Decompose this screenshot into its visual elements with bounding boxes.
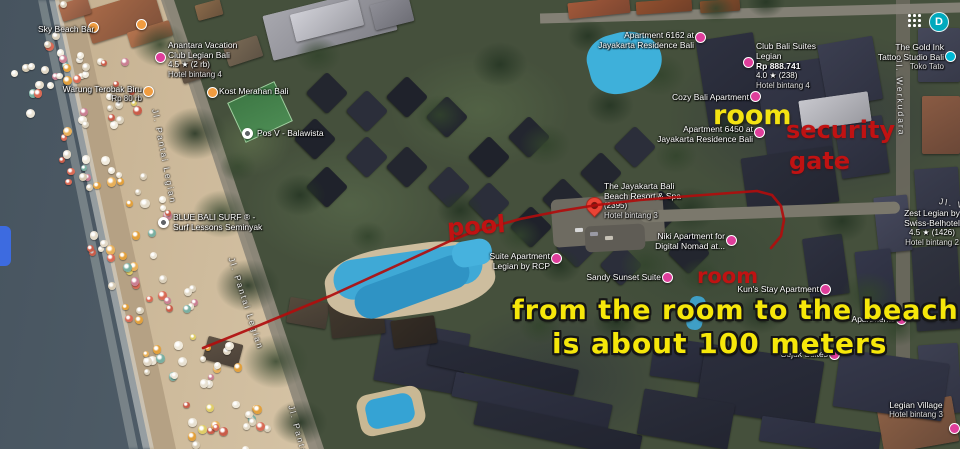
beach-umbrella bbox=[156, 354, 165, 363]
place-label-line: Legian bbox=[756, 51, 816, 61]
place-label-line: Anantara Vacation bbox=[168, 40, 237, 50]
place-label-line: Rp 80 rb bbox=[63, 94, 142, 104]
place-label-line: Jayakarta Residence Bali bbox=[657, 134, 753, 144]
beach-umbrella bbox=[47, 82, 54, 89]
place-label-line: (2395) bbox=[604, 201, 681, 211]
beach-umbrella bbox=[108, 282, 116, 290]
place-label-line: The Gold Ink bbox=[878, 42, 944, 52]
beach-umbrella bbox=[225, 342, 234, 351]
place-label-line: 4.5 ★ (1426) bbox=[904, 228, 960, 238]
beach-umbrella bbox=[159, 275, 167, 283]
beach-umbrella bbox=[178, 357, 187, 366]
tree-canopy bbox=[240, 332, 312, 391]
place-label-line: Pos V - Balawista bbox=[257, 128, 324, 138]
place-label-line: Niki Apartment for bbox=[655, 231, 725, 241]
beach-umbrella bbox=[140, 173, 147, 180]
beach-umbrella bbox=[253, 405, 262, 414]
place-label-line: Hotel bintang 3 bbox=[604, 211, 681, 221]
annotation-distance-line-1: from the room to the beach bbox=[512, 295, 959, 326]
place-label-line: 4.0 ★ (238) bbox=[756, 71, 816, 81]
beach-umbrella bbox=[174, 341, 183, 350]
place-label-line: Swiss-Belhotel bbox=[904, 218, 960, 228]
place-label-legian-village[interactable]: Legian VillageHotel bintang 3 bbox=[889, 400, 943, 420]
annotation-room-right: room bbox=[697, 264, 758, 288]
beach-umbrella bbox=[153, 345, 162, 354]
parking-area bbox=[584, 223, 645, 252]
beach-umbrella bbox=[140, 199, 149, 208]
suite-apartment-rcp-pin[interactable] bbox=[551, 253, 562, 264]
place-label-line: Club Bali Suites bbox=[756, 41, 816, 51]
place-label-line: Suite Apartment bbox=[490, 251, 550, 261]
map-canvas[interactable]: Sky Beach BarAnantara VacationClub Legia… bbox=[0, 0, 960, 449]
beach-umbrella bbox=[143, 357, 152, 366]
beach-umbrella bbox=[87, 245, 94, 252]
annotation-distance-line-2: is about 100 meters bbox=[552, 327, 887, 360]
beach-umbrella bbox=[107, 177, 116, 186]
beach-umbrella bbox=[86, 184, 93, 191]
left-blue-bar bbox=[0, 226, 11, 266]
beach-umbrella bbox=[184, 288, 192, 296]
place-label-line: Tattoo Studio Bali bbox=[878, 52, 944, 62]
beach-umbrella bbox=[123, 263, 132, 272]
beach-umbrella bbox=[264, 425, 271, 432]
beach-umbrella bbox=[93, 182, 100, 189]
club-bali-suites-pin[interactable] bbox=[743, 57, 754, 68]
beach-umbrella bbox=[108, 114, 115, 121]
place-label-line: Hotel bintang 3 bbox=[889, 410, 943, 420]
beach-umbrella bbox=[192, 441, 200, 449]
beach-umbrella bbox=[243, 423, 250, 430]
beach-umbrella bbox=[135, 316, 143, 324]
account-avatar[interactable]: D bbox=[929, 12, 949, 32]
place-label-pos-v-balawista[interactable]: Pos V - Balawista bbox=[257, 128, 324, 138]
place-label-jayakarta-bali-resort[interactable]: The Jayakarta BaliBeach Resort & Spa(239… bbox=[604, 181, 681, 221]
building bbox=[922, 96, 960, 154]
place-label-line: 4.5 ★ (2 rb) bbox=[168, 60, 237, 70]
tree-canopy bbox=[517, 122, 573, 168]
tree-canopy bbox=[293, 35, 343, 76]
place-label-niki-apartment[interactable]: Niki Apartment forDigital Nomad at... bbox=[655, 231, 725, 251]
beach-umbrella bbox=[44, 41, 51, 48]
beach-umbrella bbox=[107, 105, 113, 111]
place-label-line: Apartment 6162 at bbox=[598, 30, 694, 40]
place-label-line: Hotel bintang 4 bbox=[168, 70, 237, 80]
google-apps-grid-icon[interactable] bbox=[908, 14, 922, 28]
parked-car bbox=[575, 228, 583, 232]
beach-umbrella bbox=[117, 178, 124, 185]
beach-umbrella bbox=[190, 334, 196, 340]
annotation-gate: gate bbox=[789, 147, 850, 175]
beach-umbrella bbox=[148, 229, 156, 237]
beach-umbrella bbox=[63, 150, 71, 158]
beach-umbrella bbox=[188, 418, 196, 426]
beach-umbrella bbox=[232, 401, 240, 409]
beach-umbrella bbox=[164, 297, 171, 304]
place-label-line: Digital Nomad at... bbox=[655, 241, 725, 251]
beach-umbrella bbox=[125, 315, 133, 323]
beach-umbrella bbox=[59, 55, 67, 63]
beach-umbrella bbox=[159, 196, 166, 203]
beach-umbrella bbox=[90, 231, 99, 240]
legian-village-pin[interactable] bbox=[949, 423, 960, 434]
beach-umbrella bbox=[101, 156, 110, 165]
place-label-line: Legian Village bbox=[889, 400, 943, 410]
place-label-line: Zest Legian by bbox=[904, 208, 960, 218]
warung-terobak-biru-pin[interactable] bbox=[143, 86, 154, 97]
beach-bar-2-pin[interactable] bbox=[136, 19, 147, 30]
tree-canopy bbox=[272, 172, 328, 218]
place-label-line: Surf Lessons Seminyak bbox=[173, 222, 262, 232]
beach-umbrella bbox=[256, 422, 265, 431]
place-label-line: The Jayakarta Bali bbox=[604, 181, 681, 191]
anantara-vacation-club-pin[interactable] bbox=[155, 52, 166, 63]
beach-umbrella bbox=[82, 155, 90, 163]
place-label-line: Toko Tato bbox=[878, 62, 944, 72]
place-label-line: Sky Beach Bar bbox=[38, 24, 94, 34]
gold-ink-tattoo-pin[interactable] bbox=[945, 51, 956, 62]
place-label-line: Sandy Sunset Suite bbox=[586, 272, 661, 282]
blue-bali-surf-pin[interactable] bbox=[158, 217, 169, 228]
place-label-anantara-vacation-club[interactable]: Anantara VacationClub Legian Bali4.5 ★ (… bbox=[168, 40, 237, 80]
beach-umbrella bbox=[121, 58, 129, 66]
beach-umbrella bbox=[82, 121, 89, 128]
beach-umbrella bbox=[206, 404, 214, 412]
place-label-line: Beach Resort & Spa bbox=[604, 191, 681, 201]
place-label-sky-beach-bar[interactable]: Sky Beach Bar bbox=[38, 24, 94, 34]
beach-umbrella bbox=[131, 277, 139, 285]
annotation-security: security bbox=[786, 116, 895, 144]
beach-umbrella bbox=[73, 75, 81, 83]
beach-umbrella bbox=[234, 363, 242, 371]
place-label-line: Kost Merahan Bali bbox=[219, 86, 288, 96]
annotation-pool: pool bbox=[446, 210, 506, 242]
beach-umbrella bbox=[110, 121, 118, 129]
beach-umbrella bbox=[213, 424, 220, 431]
kost-merahan-bali-pin[interactable] bbox=[207, 87, 218, 98]
place-label-apartment-6162[interactable]: Apartment 6162 atJayakarta Residence Bal… bbox=[598, 30, 694, 50]
place-label-zest-legian[interactable]: Zest Legian bySwiss-Belhotel4.5 ★ (1426)… bbox=[904, 208, 960, 248]
apartment-6162-pin[interactable] bbox=[695, 32, 706, 43]
beach-umbrella bbox=[101, 60, 107, 66]
place-label-warung-terobak-biru[interactable]: Warung Terobak BiruRp 80 rb bbox=[63, 84, 142, 104]
beach-umbrella bbox=[82, 63, 90, 71]
beach-umbrella bbox=[200, 356, 206, 362]
parked-car bbox=[605, 236, 613, 240]
place-label-line: Club Legian Bali bbox=[168, 50, 237, 60]
tree-canopy bbox=[413, 93, 467, 137]
place-label-gold-ink-tattoo[interactable]: The Gold InkTattoo Studio BaliToko Tato bbox=[878, 42, 944, 72]
niki-apartment-pin[interactable] bbox=[726, 235, 737, 246]
place-label-line: Hotel bintang 4 bbox=[756, 81, 816, 91]
beach-umbrella bbox=[133, 106, 142, 115]
place-label-line: Rp 888.741 bbox=[756, 61, 816, 71]
beach-umbrella bbox=[150, 252, 157, 259]
beach-umbrella bbox=[183, 402, 190, 409]
place-label-line: Jayakarta Residence Bali bbox=[598, 40, 694, 50]
place-label-line: Legian by RCP bbox=[490, 261, 550, 271]
annotation-room-top: room bbox=[713, 100, 792, 131]
tree-canopy bbox=[470, 40, 530, 89]
beach-umbrella bbox=[80, 108, 88, 116]
place-label-line: Warung Terobak Biru bbox=[63, 84, 142, 94]
beach-umbrella bbox=[188, 432, 197, 441]
beach-umbrella bbox=[166, 305, 173, 312]
place-label-kost-merahan-bali[interactable]: Kost Merahan Bali bbox=[219, 86, 288, 96]
beach-umbrella bbox=[34, 89, 43, 98]
place-label-club-bali-suites[interactable]: Club Bali SuitesLegianRp 888.7414.0 ★ (2… bbox=[756, 41, 816, 91]
beach-umbrella bbox=[198, 425, 207, 434]
parked-car bbox=[590, 232, 598, 236]
beach-umbrella bbox=[135, 189, 141, 195]
place-label-suite-apartment-rcp[interactable]: Suite ApartmentLegian by RCP bbox=[490, 251, 550, 271]
beach-umbrella bbox=[245, 411, 252, 418]
beach-umbrella bbox=[132, 231, 140, 239]
beach-umbrella bbox=[183, 305, 191, 313]
beach-umbrella bbox=[143, 351, 149, 357]
beach-umbrella bbox=[219, 427, 228, 436]
place-label-blue-bali-surf[interactable]: BLUE BALI SURF ® -Surf Lessons Seminyak bbox=[173, 212, 262, 232]
place-label-line: BLUE BALI SURF ® - bbox=[173, 212, 262, 222]
pos-v-balawista-pin[interactable] bbox=[242, 128, 253, 139]
sandy-sunset-suite-pin[interactable] bbox=[662, 272, 673, 283]
beach-umbrella bbox=[171, 372, 178, 379]
beach-umbrella bbox=[136, 307, 144, 315]
place-label-sandy-sunset-suite[interactable]: Sandy Sunset Suite bbox=[586, 272, 661, 282]
beach-umbrella bbox=[146, 296, 153, 303]
beach-umbrella bbox=[116, 172, 122, 178]
place-label-line: Hotel bintang 2 bbox=[904, 238, 960, 248]
beach-umbrella bbox=[126, 200, 133, 207]
kuns-stay-apartment-pin[interactable] bbox=[820, 284, 831, 295]
